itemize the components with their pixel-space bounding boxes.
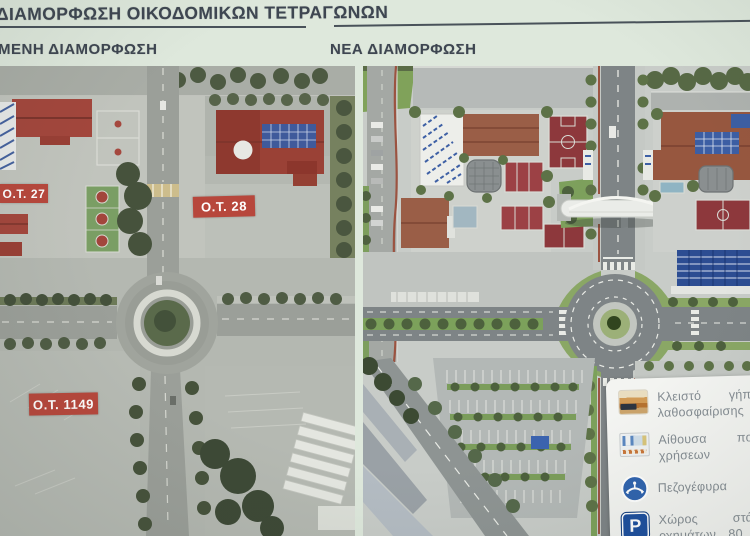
green-basketball-courts: [86, 186, 119, 252]
legend-item-bridge: Πεζογέφυρα: [620, 471, 750, 503]
existing-aerial-map: Ο.Τ. 27 Ο.Τ. 28 Ο.Τ. 1149: [0, 66, 355, 536]
solar-roof-building: [420, 114, 464, 186]
page-title: ΔΙΑΜΟΡΦΩΣΗ ΟΙΚΟΔΟΜΙΚΩΝ ΤΕΤΡΑΓΩΝΩΝ: [0, 2, 388, 25]
fenced-court-east: [699, 166, 733, 192]
striped-solar-building: [0, 102, 16, 170]
legend-label: Πεζογέφυρα: [658, 477, 750, 496]
main-road-new: [583, 66, 653, 270]
open-lot-sw: [0, 351, 140, 536]
large-flat-roof: [413, 66, 599, 108]
bus-layby: [391, 292, 479, 302]
legend-item-parking: P Χώρος στάθμ οχημάτων 80 θέ: [621, 509, 750, 536]
solar-array-east: [695, 132, 739, 154]
arena-photo-icon: [618, 389, 649, 415]
legend: Κλειστό γήπεδ λαθοσφαίρισης Αίθουσα πολλ…: [606, 375, 750, 536]
hall-photo-icon: [619, 432, 650, 457]
aerial-photo-illustration: [0, 66, 355, 536]
legend-label: χρήσεων: [659, 445, 750, 464]
white-shed: [318, 506, 355, 530]
new-design-render: Κλειστό γήπεδ λαθοσφαίρισης Αίθουσα πολλ…: [363, 66, 750, 536]
legend-label: λαθοσφαίρισης: [657, 402, 750, 421]
legend-label: Αίθουσα πολλ: [658, 428, 750, 447]
block-label-ot1149: Ο.Τ. 1149: [29, 392, 98, 415]
legend-item-hall: Αίθουσα πολλ χρήσεων: [619, 428, 750, 465]
basketball-court-east: [696, 200, 750, 230]
left-panel-heading: ΜΕΝΗ ΔΙΑΜΟΡΦΩΣΗ: [0, 41, 157, 58]
east-road: [217, 292, 355, 336]
roundabout-existing: [116, 272, 218, 374]
red-court-a: [505, 162, 543, 192]
presentation-slide: ΔΙΑΜΟΡΦΩΣΗ ΟΙΚΟΔΟΜΙΚΩΝ ΤΕΤΡΑΓΩΝΩΝ ΜΕΝΗ Δ…: [0, 0, 750, 536]
tree-strip-east: [330, 96, 355, 258]
pedestrian-bridge-icon: [620, 474, 649, 503]
title-underline-left: [0, 26, 306, 28]
pool-west: [453, 206, 477, 228]
pool-east: [660, 182, 684, 193]
fenced-court: [467, 160, 501, 192]
red-court-b: [501, 206, 543, 230]
block-label-ot27: Ο.Τ. 27: [0, 184, 48, 203]
brown-roof-building-sw: [401, 198, 455, 248]
closed-basketball-arena: [671, 250, 750, 294]
right-panel-heading: ΝΕΑ ΔΙΑΜΟΡΦΩΣΗ: [330, 41, 476, 58]
legend-item-arena: Κλειστό γήπεδ λαθοσφαίρισης: [618, 386, 750, 423]
basketball-court-west: [549, 116, 587, 168]
white-canopy: [234, 141, 253, 160]
accessible-stalls: [531, 436, 549, 449]
title-underline-right: [334, 20, 750, 27]
parking-icon: P: [621, 512, 649, 536]
brown-roof-building-north: [463, 114, 539, 156]
block-label-ot28: Ο.Τ. 28: [193, 195, 256, 218]
